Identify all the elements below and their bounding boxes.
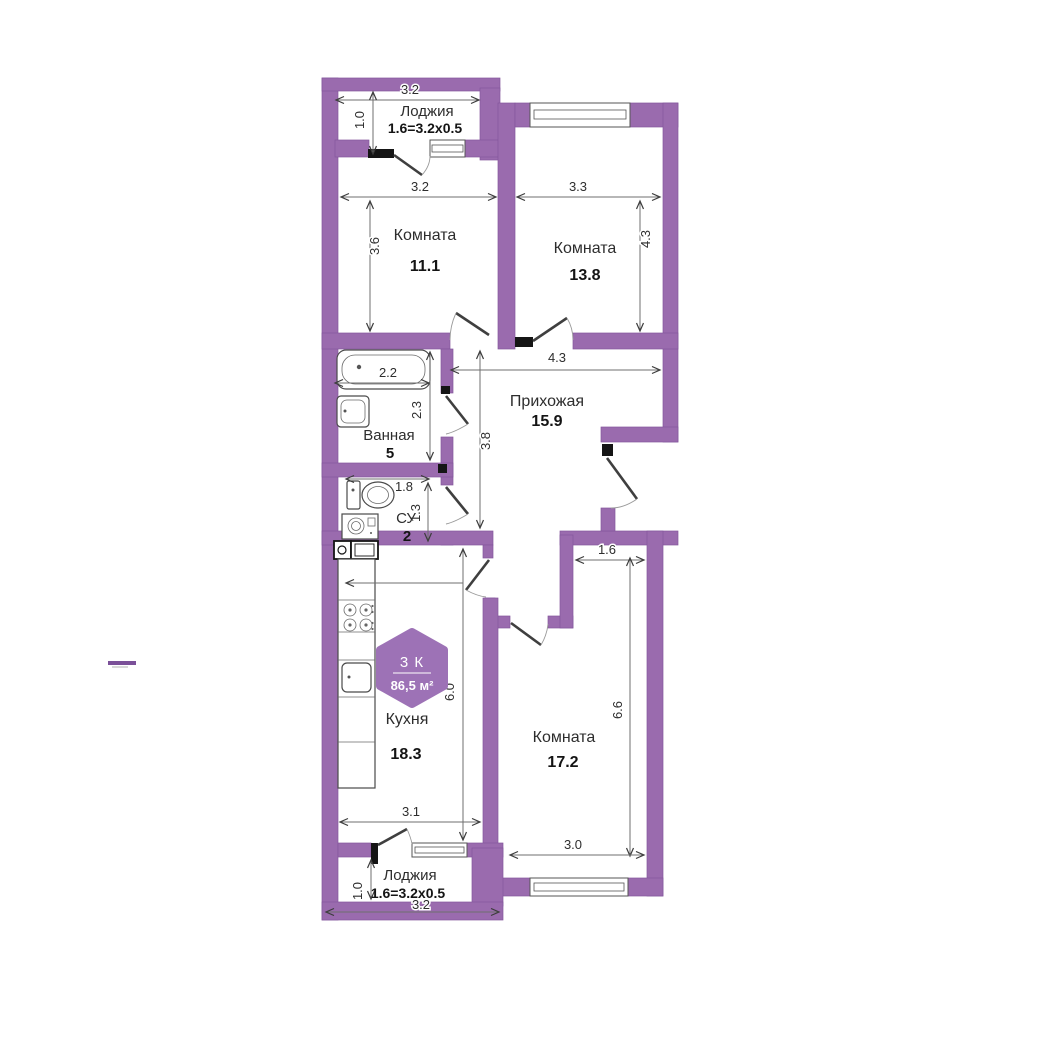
wall: [472, 848, 503, 906]
dim-hallway-height: 3.8: [478, 432, 493, 450]
entrance-door: [602, 444, 637, 508]
wall: [573, 333, 678, 349]
dim-bathroom-width: 2.2: [379, 365, 397, 380]
dim-room-c-width: 3.0: [564, 837, 582, 852]
door-room-c: [511, 623, 548, 645]
wall: [465, 140, 500, 157]
dim-room-a-height: 3.6: [367, 237, 382, 255]
wall: [663, 103, 678, 442]
dim-room-c-top: 1.6: [598, 542, 616, 557]
window-room-c: [530, 878, 628, 896]
dim-room-b-width: 3.3: [569, 179, 587, 194]
window-kitchen-loggia: [412, 843, 467, 857]
toilet-icon: [347, 481, 394, 509]
wall: [601, 427, 678, 442]
bathroom-sink-icon: [337, 396, 369, 427]
dim-loggia-top-depth: 1.0: [352, 111, 367, 129]
windows: [412, 103, 630, 896]
window-room-a-loggia: [430, 140, 465, 157]
badge-total-area: 86,5 м²: [391, 678, 435, 693]
bathroom-label: Ванная: [363, 427, 414, 444]
wall: [601, 508, 615, 531]
wall: [483, 598, 498, 878]
dim-room-a-width: 3.2: [411, 179, 429, 194]
door-room-a: [450, 313, 489, 340]
wall: [441, 437, 453, 485]
dim-room-c-height: 6.6: [610, 701, 625, 719]
room-a-label: Комната: [394, 227, 457, 244]
wall: [338, 843, 371, 857]
wc-area: 2: [403, 528, 411, 545]
wall: [498, 103, 515, 349]
wall: [335, 140, 369, 157]
window-room-b: [530, 103, 630, 127]
wall: [628, 878, 663, 896]
dim-bathroom-height: 2.3: [409, 401, 424, 419]
floor-plan: 3.2 1.0 3.2 3.6 3.3 4.3 4.3 3.8 2.2 2.3 …: [0, 0, 1042, 1039]
kitchen-label: Кухня: [386, 711, 429, 728]
room-c-area: 17.2: [547, 754, 578, 771]
room-b-label: Комната: [554, 240, 617, 257]
balcony-door-bottom: [371, 829, 412, 864]
kitchen-sink-icon: [342, 663, 371, 692]
dim-loggia-top-width: 3.2: [401, 82, 419, 97]
dim-kitchen-width: 3.1: [402, 804, 420, 819]
wall: [647, 531, 663, 896]
wall: [322, 78, 338, 920]
room-c-label: Комната: [533, 729, 596, 746]
loggia-top-label: Лоджия: [400, 103, 453, 120]
wall: [483, 545, 493, 558]
door-room-b: [515, 318, 573, 347]
dim-room-b-height: 4.3: [638, 230, 653, 248]
loggia-bottom-label: Лоджия: [383, 867, 436, 884]
dim-hallway-width: 4.3: [548, 350, 566, 365]
door-bathroom: [441, 386, 468, 434]
washing-machine-icon: [342, 514, 378, 539]
wall: [322, 463, 453, 477]
wc-label: СУ: [396, 510, 416, 527]
loggia-bottom-formula: 1.6=3.2x0.5: [371, 885, 446, 901]
balcony-door-top: [368, 149, 430, 175]
room-a-area: 11.1: [410, 258, 440, 275]
hallway-label: Прихожая: [510, 393, 584, 410]
kitchen-area: 18.3: [390, 746, 421, 763]
artifact-mark: [108, 661, 136, 668]
loggia-top-formula: 1.6=3.2x0.5: [388, 120, 463, 136]
floor-plan-svg: 3.2 1.0 3.2 3.6 3.3 4.3 4.3 3.8 2.2 2.3 …: [0, 0, 1042, 1039]
kitchen-unit-icon: [334, 541, 378, 559]
dim-loggia-bottom-depth: 1.0: [350, 882, 365, 900]
room-b-area: 13.8: [569, 267, 600, 284]
bathroom-area: 5: [386, 445, 394, 462]
wall: [515, 103, 530, 127]
wall: [560, 535, 573, 628]
wall: [322, 333, 450, 349]
hallway-area: 15.9: [531, 413, 562, 430]
badge-type-label: 3 К: [400, 654, 424, 671]
apartment-type-badge: 3 К 86,5 м²: [380, 632, 444, 704]
door-kitchen: [466, 560, 489, 597]
dim-wc-width: 1.8: [395, 479, 413, 494]
